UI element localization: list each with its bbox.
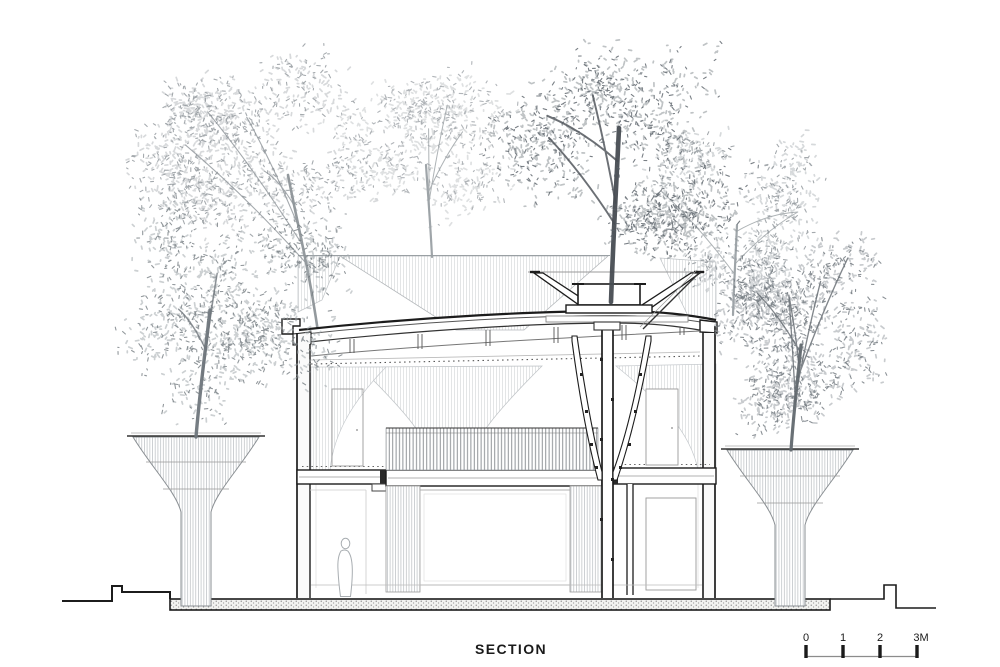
section-drawing-page: SECTION 0 1 2 3M — [0, 0, 1000, 667]
scale-label-1: 1 — [840, 632, 846, 644]
louver-screen — [386, 428, 598, 470]
human-figure — [338, 538, 352, 596]
mezzanine-right-slab — [613, 465, 716, 485]
tree-upper-center-left — [318, 62, 521, 257]
scale-label-2: 2 — [877, 632, 883, 644]
planter-column-right — [721, 446, 859, 606]
mezzanine-center-slab — [386, 470, 602, 486]
lower-walls-and-doors — [310, 389, 702, 595]
planter-column-left — [127, 433, 265, 606]
section-drawing: SECTION 0 1 2 3M — [0, 0, 1000, 667]
scale-label-3: 3M — [913, 632, 928, 644]
scale-label-0: 0 — [803, 632, 809, 644]
scale-bar: 0 1 2 3M — [803, 632, 929, 658]
title-text: SECTION — [475, 641, 547, 657]
tree-upper-left — [126, 44, 378, 332]
drawing-title: SECTION — [475, 641, 547, 657]
tree-right-planter-column — [715, 231, 887, 450]
